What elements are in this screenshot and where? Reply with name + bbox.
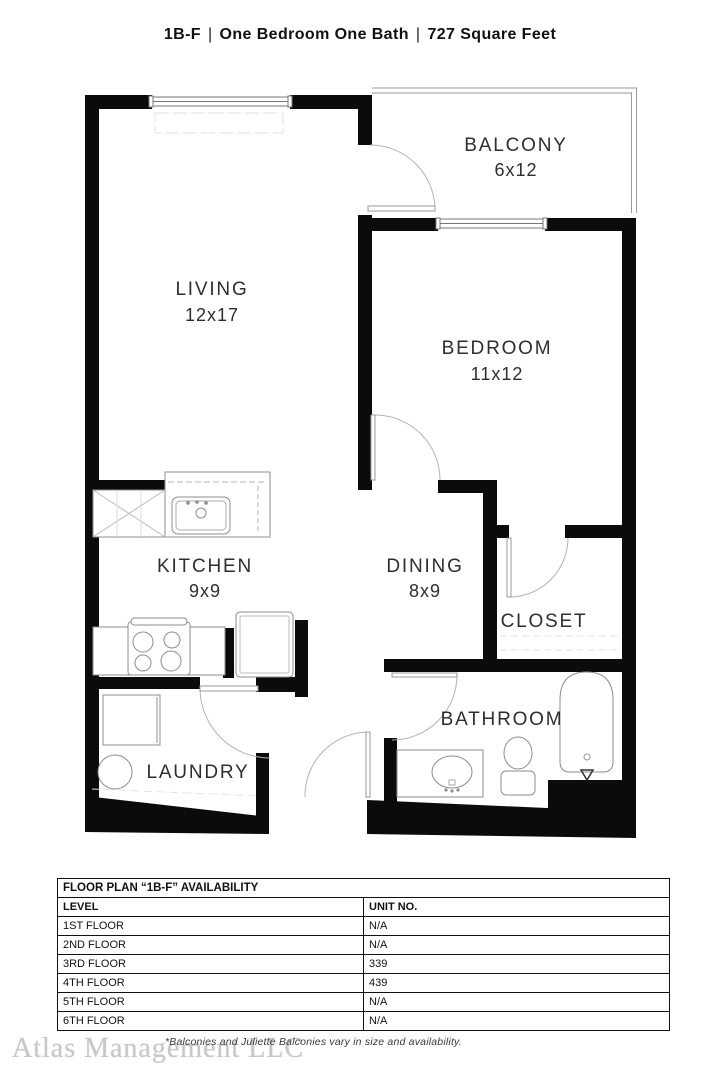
room-label-dining: DINING: [386, 556, 463, 577]
entry-door: [305, 732, 370, 797]
table-row: 5TH FLOOR N/A: [58, 993, 670, 1012]
table-header-row: LEVEL UNIT NO.: [58, 898, 670, 917]
level-cell: 6TH FLOOR: [58, 1012, 364, 1031]
bathtub: [560, 672, 613, 780]
room-label-laundry: LAUNDRY: [146, 762, 249, 783]
room-dims-kitchen: 9x9: [189, 581, 221, 601]
level-cell: 4TH FLOOR: [58, 974, 364, 993]
room-dims-balcony: 6x12: [494, 160, 537, 180]
bathroom-vanity: [397, 750, 483, 797]
balcony-disclaimer: *Balconies and Juliette Balconies vary i…: [165, 1036, 462, 1048]
room-label-living: LIVING: [175, 279, 248, 300]
unit-cell: N/A: [364, 1012, 670, 1031]
room-dims-bedroom: 11x12: [471, 364, 524, 384]
unit-cell: N/A: [364, 993, 670, 1012]
unit-cell: 339: [364, 955, 670, 974]
balcony-door: [368, 145, 435, 211]
table-row: 1ST FLOOR N/A: [58, 917, 670, 936]
closet-door: [507, 538, 568, 597]
room-label-bedroom: BEDROOM: [442, 338, 553, 359]
room-label-closet: CLOSET: [501, 611, 588, 632]
bedroom-door: [371, 415, 440, 480]
laundry-basin: [98, 755, 132, 789]
bedroom-window: [436, 218, 547, 229]
table-title-row: FLOOR PLAN “1B-F” AVAILABILITY: [58, 879, 670, 898]
window-seat-outline: [155, 113, 283, 133]
washer: [103, 695, 160, 745]
laundry-floor-edge: [92, 789, 258, 796]
toilet: [501, 737, 535, 795]
unit-cell: N/A: [364, 917, 670, 936]
room-dims-living: 12x17: [185, 305, 239, 325]
level-cell: 2ND FLOOR: [58, 936, 364, 955]
closet-shelf: [500, 636, 618, 650]
laundry-door: [200, 686, 270, 758]
table-row: 4TH FLOOR 439: [58, 974, 670, 993]
unit-cell: N/A: [364, 936, 670, 955]
stove: [93, 618, 225, 675]
living-window: [149, 96, 292, 107]
floor-plan-page: 1B-F|One Bedroom One Bath|727 Square Fee…: [0, 0, 720, 1080]
room-label-kitchen: KITCHEN: [157, 556, 253, 577]
table-row: 6TH FLOOR N/A: [58, 1012, 670, 1031]
room-label-balcony: BALCONY: [464, 135, 567, 156]
column-header-level: LEVEL: [58, 898, 364, 917]
column-header-unit: UNIT NO.: [364, 898, 670, 917]
level-cell: 1ST FLOOR: [58, 917, 364, 936]
table-title: FLOOR PLAN “1B-F” AVAILABILITY: [58, 879, 670, 898]
level-cell: 5TH FLOOR: [58, 993, 364, 1012]
refrigerator: [236, 612, 293, 677]
availability-table: FLOOR PLAN “1B-F” AVAILABILITY LEVEL UNI…: [57, 878, 670, 1031]
unit-cell: 439: [364, 974, 670, 993]
table-row: 2ND FLOOR N/A: [58, 936, 670, 955]
level-cell: 3RD FLOOR: [58, 955, 364, 974]
room-label-bathroom: BATHROOM: [441, 709, 564, 730]
table-row: 3RD FLOOR 339: [58, 955, 670, 974]
kitchen-sink: [172, 497, 230, 534]
room-dims-dining: 8x9: [409, 581, 441, 601]
